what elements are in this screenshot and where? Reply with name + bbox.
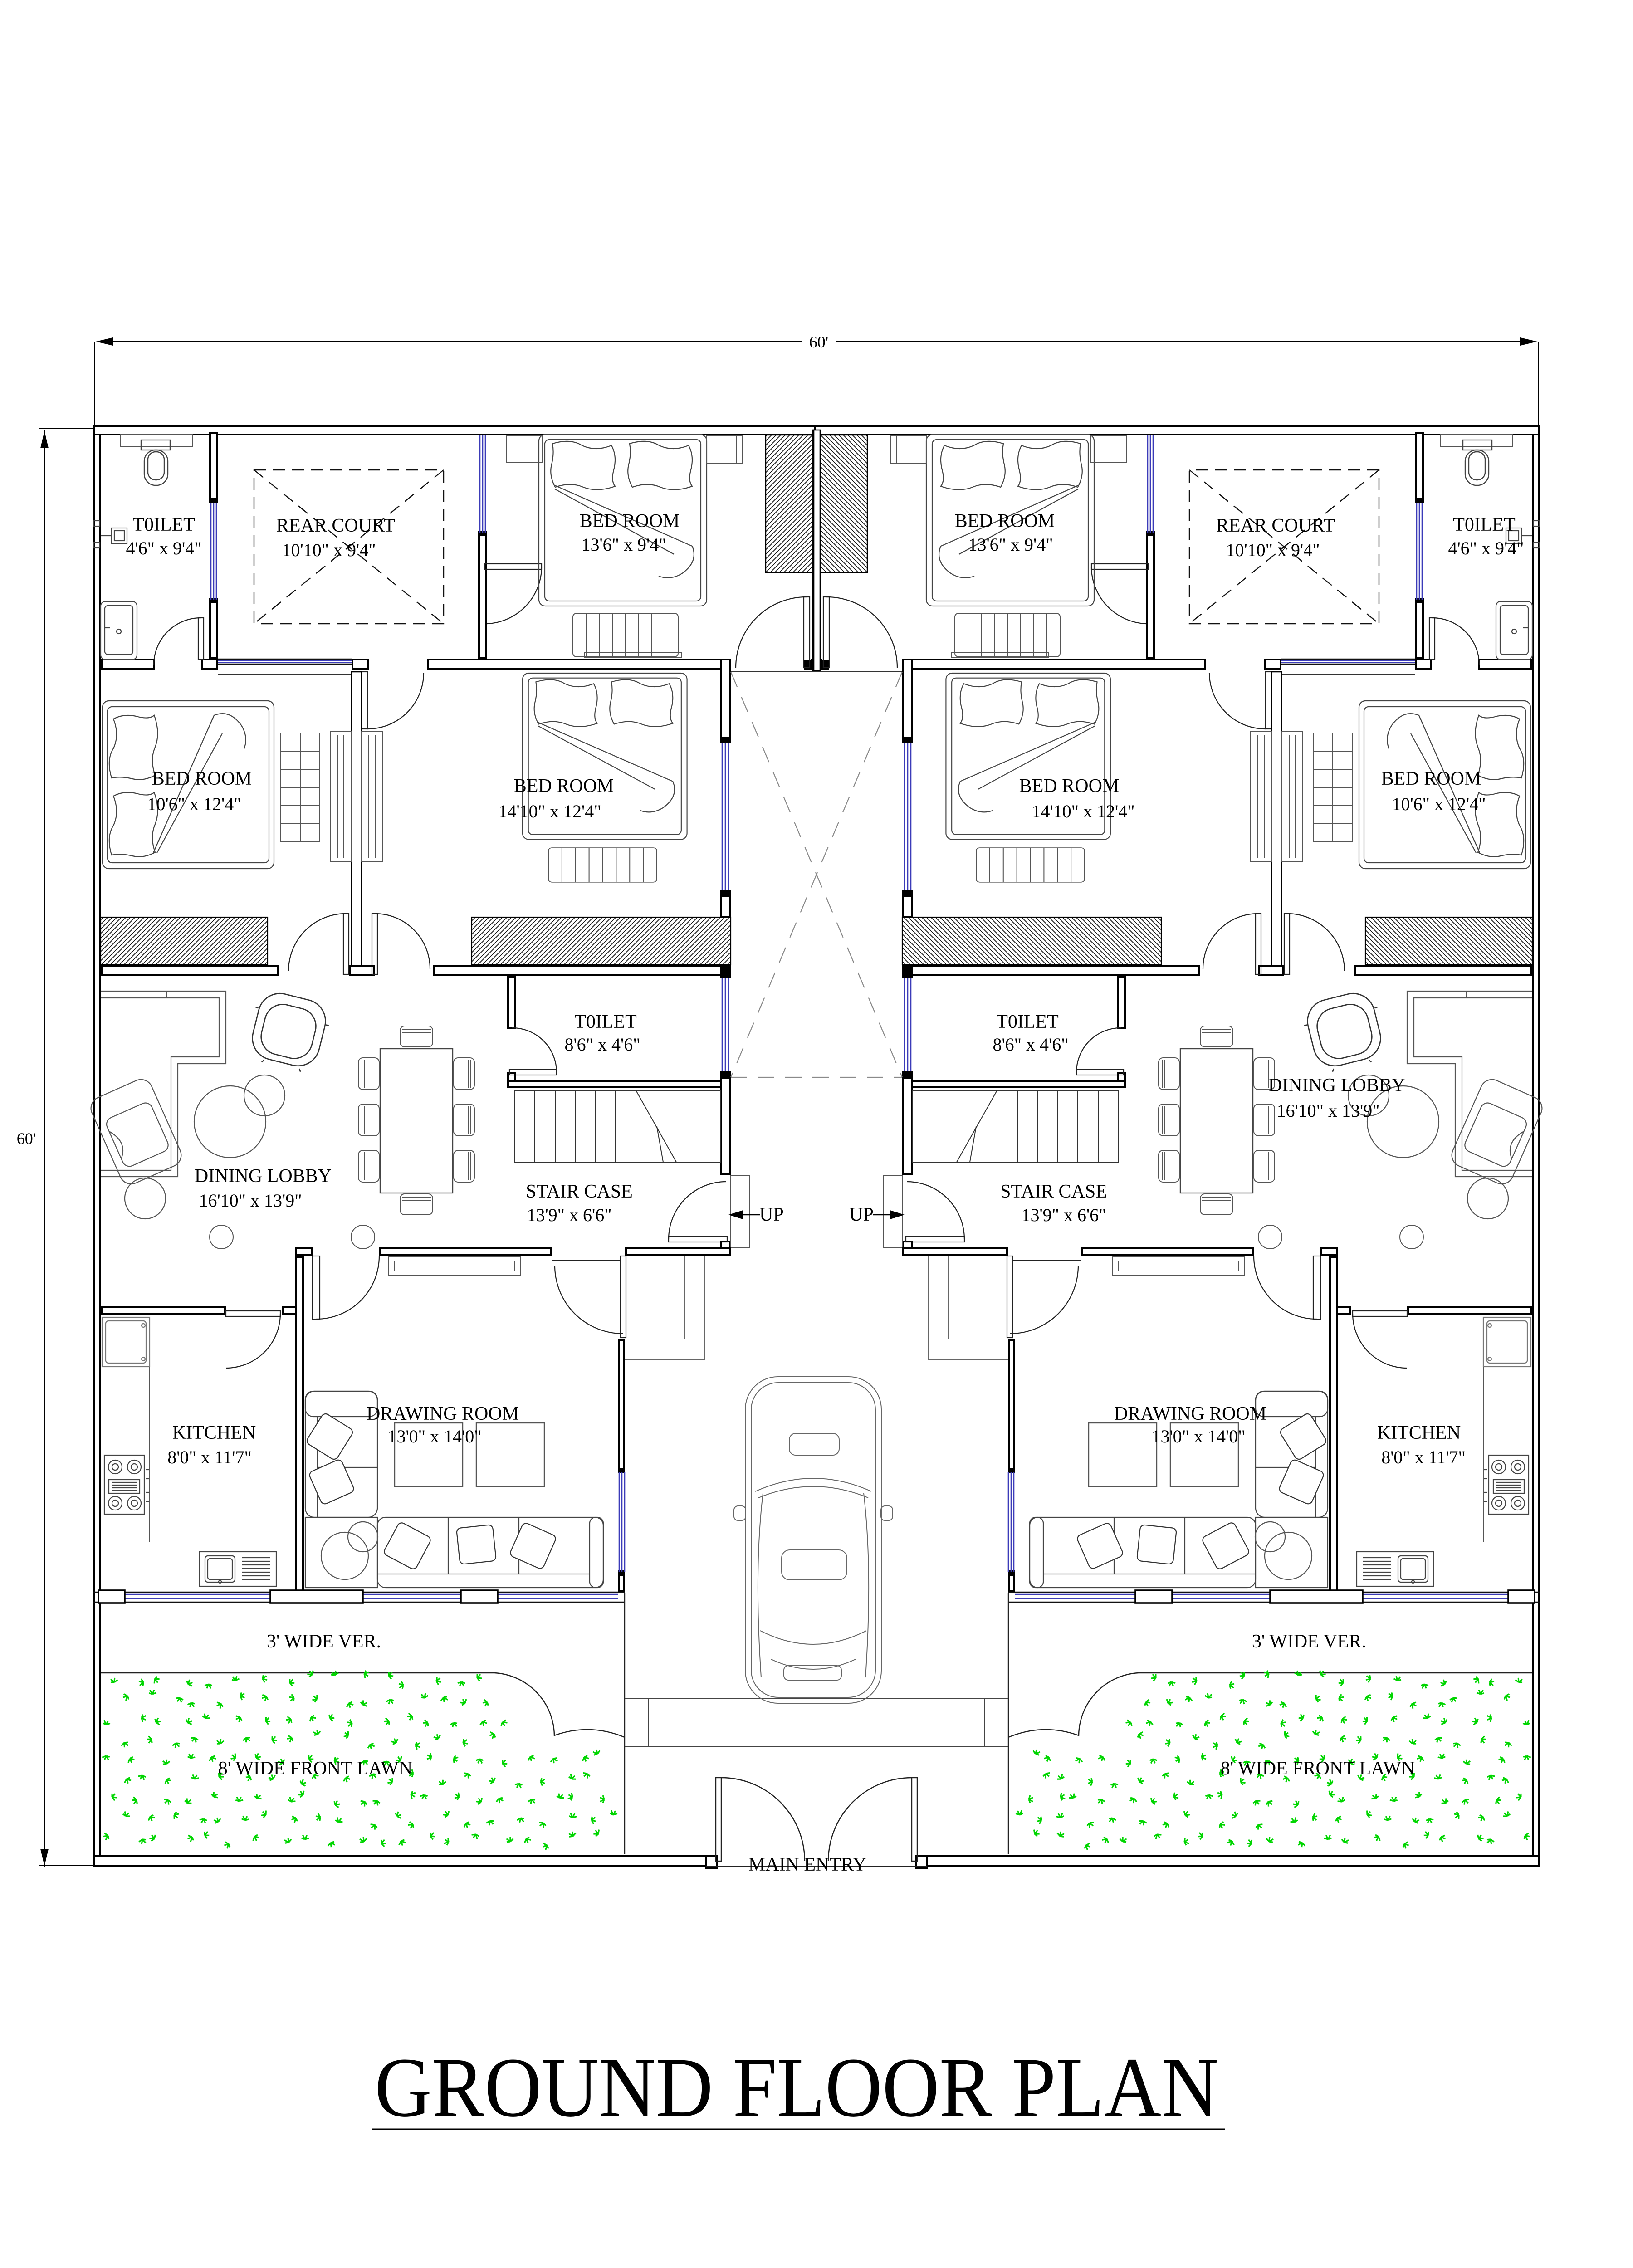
svg-text:STAIR CASE: STAIR CASE xyxy=(1000,1181,1107,1202)
svg-text:10'6" x 12'4": 10'6" x 12'4" xyxy=(1392,794,1486,814)
svg-text:MAIN ENTRY: MAIN ENTRY xyxy=(748,1854,866,1875)
svg-text:BED ROOM: BED ROOM xyxy=(955,511,1055,532)
svg-text:BED ROOM: BED ROOM xyxy=(152,768,252,789)
svg-text:UP: UP xyxy=(849,1204,874,1225)
svg-text:16'10" x 13'9": 16'10" x 13'9" xyxy=(199,1190,302,1211)
svg-text:8'0" x 11'7": 8'0" x 11'7" xyxy=(167,1447,252,1467)
svg-text:16'10" x 13'9": 16'10" x 13'9" xyxy=(1276,1100,1379,1121)
svg-text:13'6" x 9'4": 13'6" x 9'4" xyxy=(968,534,1053,555)
svg-text:BED ROOM: BED ROOM xyxy=(1381,768,1481,789)
svg-text:T0ILET: T0ILET xyxy=(574,1012,637,1032)
svg-text:13'9" x 6'6": 13'9" x 6'6" xyxy=(527,1205,611,1225)
svg-text:BED ROOM: BED ROOM xyxy=(1019,776,1120,797)
svg-text:60': 60' xyxy=(809,333,829,351)
svg-text:DRAWING ROOM: DRAWING ROOM xyxy=(367,1403,519,1424)
svg-text:13'0" x 14'0": 13'0" x 14'0" xyxy=(387,1426,481,1447)
svg-text:DINING LOBBY: DINING LOBBY xyxy=(195,1166,332,1187)
svg-text:8'6" x 4'6": 8'6" x 4'6" xyxy=(564,1034,640,1055)
svg-text:3' WIDE VER.: 3' WIDE VER. xyxy=(1252,1631,1366,1652)
svg-text:BED ROOM: BED ROOM xyxy=(580,511,680,532)
svg-text:14'10" x 12'4": 14'10" x 12'4" xyxy=(1032,801,1134,821)
svg-text:KITCHEN: KITCHEN xyxy=(1377,1422,1461,1443)
svg-text:DRAWING ROOM: DRAWING ROOM xyxy=(1114,1403,1266,1424)
svg-text:10'10" x 9'4": 10'10" x 9'4" xyxy=(1226,540,1320,560)
svg-text:DINING LOBBY: DINING LOBBY xyxy=(1268,1075,1405,1096)
svg-text:8'6" x 4'6": 8'6" x 4'6" xyxy=(993,1034,1068,1055)
svg-text:BED ROOM: BED ROOM xyxy=(514,776,614,797)
svg-text:UP: UP xyxy=(759,1204,784,1225)
svg-text:8' WIDE FRONT LAWN: 8' WIDE FRONT LAWN xyxy=(218,1758,412,1779)
svg-text:10'6" x 12'4": 10'6" x 12'4" xyxy=(147,794,241,814)
svg-text:GROUND FLOOR PLAN: GROUND FLOOR PLAN xyxy=(375,2040,1218,2135)
svg-text:13'9" x 6'6": 13'9" x 6'6" xyxy=(1021,1205,1106,1225)
svg-text:60': 60' xyxy=(17,1129,36,1148)
svg-text:4'6" x 9'4": 4'6" x 9'4" xyxy=(1448,538,1524,558)
svg-text:REAR COURT: REAR COURT xyxy=(276,515,395,536)
svg-text:REAR COURT: REAR COURT xyxy=(1216,515,1335,536)
svg-text:T0ILET: T0ILET xyxy=(1453,514,1516,535)
svg-text:14'10" x 12'4": 14'10" x 12'4" xyxy=(498,801,601,821)
svg-text:3' WIDE VER.: 3' WIDE VER. xyxy=(267,1631,381,1652)
svg-text:10'10" x 9'4": 10'10" x 9'4" xyxy=(282,540,376,560)
svg-text:T0ILET: T0ILET xyxy=(132,514,195,535)
svg-text:STAIR CASE: STAIR CASE xyxy=(526,1181,633,1202)
svg-text:4'6" x 9'4": 4'6" x 9'4" xyxy=(126,538,201,558)
svg-text:8'0" x 11'7": 8'0" x 11'7" xyxy=(1381,1447,1466,1467)
svg-text:13'6" x 9'4": 13'6" x 9'4" xyxy=(581,534,666,555)
svg-text:KITCHEN: KITCHEN xyxy=(172,1422,256,1443)
svg-text:T0ILET: T0ILET xyxy=(996,1012,1059,1032)
svg-text:13'0" x 14'0": 13'0" x 14'0" xyxy=(1151,1426,1245,1447)
svg-text:8' WIDE FRONT LAWN: 8' WIDE FRONT LAWN xyxy=(1221,1758,1415,1779)
